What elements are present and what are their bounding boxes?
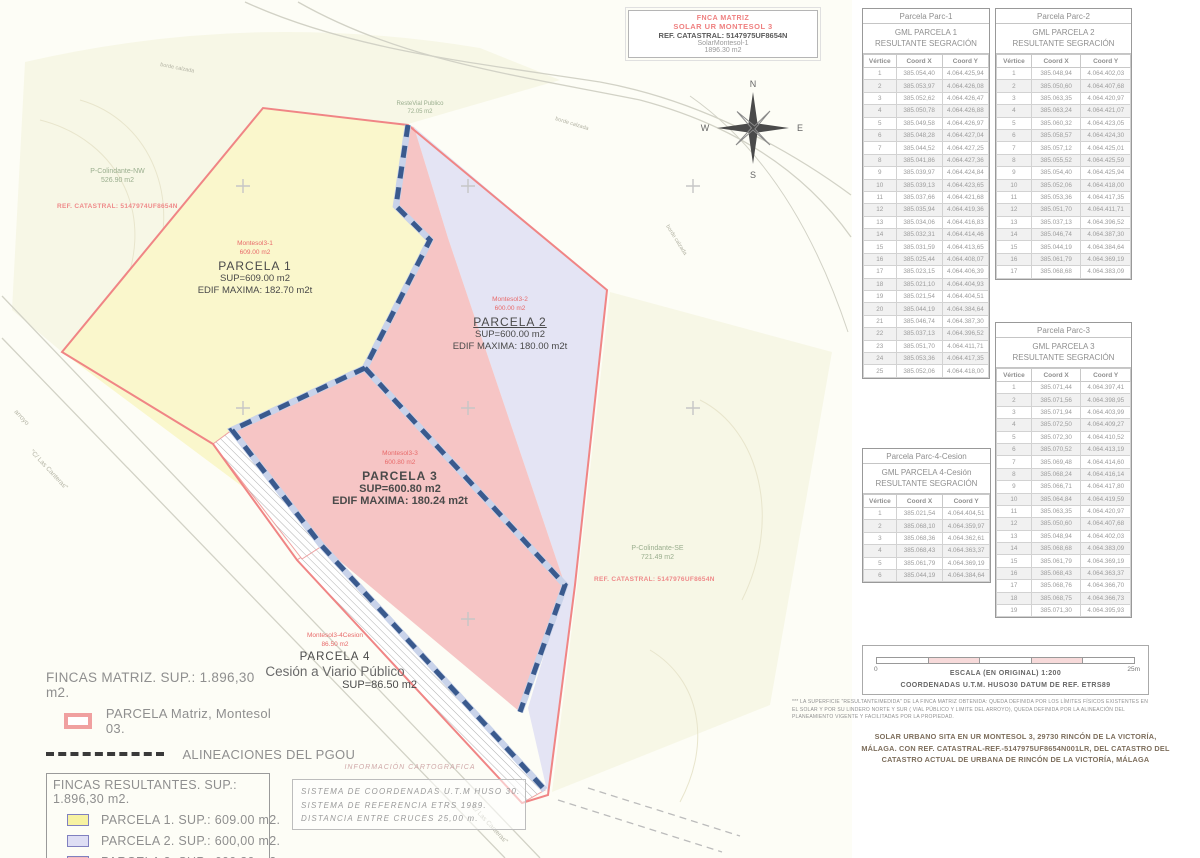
coord-cell: 385.048,28 xyxy=(896,129,942,141)
table-row: 3385.071,944.064.403,99 xyxy=(997,406,1131,418)
title-finca-matriz: FNCA MATRIZ xyxy=(631,15,815,22)
table-row: 14385.068,684.064.383,09 xyxy=(997,543,1131,555)
table-row: 4385.068,434.064.363,37 xyxy=(864,545,990,557)
coord-cell: 4.064.419,59 xyxy=(1081,493,1131,505)
table-row: 3385.052,624.064.426,47 xyxy=(864,92,989,104)
parcela-2-tag-area: 600.00 m2 xyxy=(420,305,600,314)
coord-cell: 1 xyxy=(997,68,1032,80)
coord-cell: 385.054,40 xyxy=(896,68,942,80)
coord-cell: 4.064.366,73 xyxy=(1081,592,1131,604)
coord-cell: 9 xyxy=(997,167,1032,179)
coord-cell: 2 xyxy=(864,520,897,532)
coord-cell: 385.031,59 xyxy=(896,241,942,253)
reste-vial-label: ResteVial Publico 72.05 m2 xyxy=(365,100,475,116)
coord-cell: 385.069,48 xyxy=(1031,456,1081,468)
legend-item: PARCELA 1. SUP.: 609.00 m2. xyxy=(67,811,263,829)
coord-cell: 385.072,30 xyxy=(1031,431,1081,443)
column-header: Coord X xyxy=(896,55,942,68)
legend-item: PARCELA 2. SUP.: 600,00 m2. xyxy=(67,832,263,850)
coord-cell: 4.064.383,09 xyxy=(1081,266,1131,278)
coord-cell: 1 xyxy=(997,382,1032,394)
coord-cell: 6 xyxy=(997,443,1032,455)
coord-cell: 15 xyxy=(997,241,1032,253)
coord-cell: 6 xyxy=(864,129,897,141)
coord-cell: 4.064.402,03 xyxy=(1081,68,1131,80)
coord-cell: 18 xyxy=(997,592,1032,604)
coord-cell: 13 xyxy=(864,216,897,228)
coord-cell: 385.051,70 xyxy=(1031,204,1081,216)
coord-cell: 4.064.398,95 xyxy=(1081,394,1131,406)
coord-cell: 4.064.426,47 xyxy=(942,92,988,104)
coord-cell: 4.064.404,51 xyxy=(942,291,988,303)
coord-cell: 385.037,13 xyxy=(1031,216,1081,228)
coord-cell: 4.064.411,71 xyxy=(1081,204,1131,216)
table-row: 4385.072,504.064.409,27 xyxy=(997,419,1131,431)
compass-n: N xyxy=(750,79,757,89)
coord-cell: 4.064.419,36 xyxy=(942,204,988,216)
table-row: 1385.071,444.064.397,41 xyxy=(997,382,1131,394)
coord-cell: 4.064.410,52 xyxy=(1081,431,1131,443)
table-row: 12385.035,944.064.419,36 xyxy=(864,204,989,216)
cartografia-header: INFORMACIÓN CARTOGRAFICA xyxy=(300,764,520,771)
coord-cell: 385.048,94 xyxy=(1031,68,1081,80)
table-row: 10385.052,064.064.418,00 xyxy=(997,179,1131,191)
coord-cell: 4.064.387,30 xyxy=(1081,229,1131,241)
parcela-3-edif: EDIF MAXIMA: 180.24 m2t xyxy=(305,495,495,507)
coord-cell: 4.064.384,64 xyxy=(1081,241,1131,253)
table-row: 1385.021,544.064.404,51 xyxy=(864,508,990,520)
parcela-3-title: PARCELA 3 xyxy=(305,469,495,483)
coord-cell: 385.021,10 xyxy=(896,278,942,290)
coord-cell: 4 xyxy=(864,105,897,117)
coord-cell: 22 xyxy=(864,328,897,340)
coord-cell: 7 xyxy=(864,142,897,154)
coord-cell: 9 xyxy=(997,481,1032,493)
coord-cell: 385.044,19 xyxy=(896,569,943,581)
parcela-2-edif: EDIF MAXIMA: 180.00 m2t xyxy=(420,341,600,353)
legend-item-label: PARCELA 2. SUP.: 600,00 m2. xyxy=(101,834,280,848)
parcela-2-label: Montesol3-2 600.00 m2 PARCELA 2 SUP=600.… xyxy=(420,296,600,353)
parcela-1-tag: Montesol3-1 xyxy=(165,240,345,249)
coord-cell: 9 xyxy=(864,167,897,179)
parcela-4-tag: Montesol3-4Cesion xyxy=(235,632,435,641)
legend-item: PARCELA 3. SUP.: 600,80 m2. xyxy=(67,853,263,858)
table-row: 6385.048,284.064.427,04 xyxy=(864,129,989,141)
table-subtitle: GML PARCELA 2RESULTANTE SEGRACIÓN xyxy=(996,24,1131,54)
coord-cell: 4.064.414,46 xyxy=(942,229,988,241)
table-row: 19385.021,544.064.404,51 xyxy=(864,291,989,303)
coord-cell: 4.064.369,19 xyxy=(1081,253,1131,265)
legend-parcela-matriz: PARCELA Matriz, Montesol 03. xyxy=(106,706,276,736)
coord-cell: 4.064.407,68 xyxy=(1081,518,1131,530)
column-header: Vértice xyxy=(864,495,897,508)
colindante-se-name: P-Colindante-SE xyxy=(580,544,735,553)
coord-grid: VérticeCoord XCoord Y1385.054,404.064.42… xyxy=(863,54,989,378)
coord-cell: 385.053,36 xyxy=(896,352,942,364)
coord-cell: 4.064.413,65 xyxy=(942,241,988,253)
table-row: 18385.068,754.064.366,73 xyxy=(997,592,1131,604)
coord-cell: 385.071,94 xyxy=(1031,406,1081,418)
coord-cell: 18 xyxy=(864,278,897,290)
coord-cell: 385.055,52 xyxy=(1031,154,1081,166)
coord-cell: 4.064.363,37 xyxy=(1081,567,1131,579)
coord-cell: 4.064.417,80 xyxy=(1081,481,1131,493)
coord-cell: 4.064.425,94 xyxy=(1081,167,1131,179)
coord-cell: 10 xyxy=(997,493,1032,505)
legend-swatch xyxy=(67,814,89,826)
coord-cell: 13 xyxy=(997,216,1032,228)
colindante-se-area-label: 721.49 m2 xyxy=(580,553,735,562)
coord-cell: 4.064.425,59 xyxy=(1081,154,1131,166)
column-header: Vértice xyxy=(997,55,1032,68)
coord-cell: 385.068,43 xyxy=(896,545,943,557)
table-row: 10385.064,844.064.419,59 xyxy=(997,493,1131,505)
table-row: 5385.060,324.064.423,05 xyxy=(997,117,1131,129)
coord-cell: 4.064.359,97 xyxy=(943,520,990,532)
table-row: 3385.063,354.064.420,97 xyxy=(997,92,1131,104)
coord-cell: 4.064.423,65 xyxy=(942,179,988,191)
parcela-1-tag-area: 609.00 m2 xyxy=(165,249,345,258)
table-row: 12385.050,604.064.407,68 xyxy=(997,518,1131,530)
table-row: 3385.068,364.064.362,61 xyxy=(864,532,990,544)
table-row: 21385.046,744.064.387,30 xyxy=(864,315,989,327)
coord-cell: 4.064.416,14 xyxy=(1081,468,1131,480)
coord-cell: 15 xyxy=(997,555,1032,567)
parcela-3-tag-area: 600.80 m2 xyxy=(305,459,495,468)
column-header: Coord X xyxy=(1031,369,1081,382)
title-block: FNCA MATRIZ SOLAR UR MONTESOL 3 REF. CAT… xyxy=(628,10,818,58)
coord-cell: 12 xyxy=(864,204,897,216)
reste-vial-area: 72.05 m2 xyxy=(365,108,475,116)
address-line-2: MÁLAGA. CON REF. CATASTRAL-REF.-5147975U… xyxy=(858,743,1173,755)
coord-cell: 385.068,68 xyxy=(1031,543,1081,555)
coord-cell: 8 xyxy=(997,154,1032,166)
coord-cell: 4.064.402,03 xyxy=(1081,530,1131,542)
table-row: 8385.041,864.064.427,36 xyxy=(864,154,989,166)
coord-cell: 14 xyxy=(997,543,1032,555)
coord-cell: 385.052,62 xyxy=(896,92,942,104)
coord-cell: 385.021,54 xyxy=(896,291,942,303)
coord-cell: 4.064.369,19 xyxy=(943,557,990,569)
coord-grid: VérticeCoord XCoord Y1385.071,444.064.39… xyxy=(996,368,1131,617)
legend-alineaciones: ALINEACIONES DEL PGOU xyxy=(182,747,355,762)
table-row: 7385.069,484.064.414,60 xyxy=(997,456,1131,468)
coord-cell: 16 xyxy=(997,253,1032,265)
compass-e: E xyxy=(797,123,803,133)
coord-cell: 4.064.366,70 xyxy=(1081,580,1131,592)
table-row: 15385.061,794.064.369,19 xyxy=(997,555,1131,567)
coord-cell: 385.066,71 xyxy=(1031,481,1081,493)
coord-cell: 20 xyxy=(864,303,897,315)
table-row: 17385.068,764.064.366,70 xyxy=(997,580,1131,592)
table-row: 4385.063,244.064.421,07 xyxy=(997,105,1131,117)
column-header: Coord Y xyxy=(1081,369,1131,382)
table-row: 20385.044,194.064.384,64 xyxy=(864,303,989,315)
coord-cell: 4.064.406,39 xyxy=(942,266,988,278)
coord-cell: 385.052,06 xyxy=(1031,179,1081,191)
colindante-nw-name: P-Colindante-NW xyxy=(40,167,195,176)
colindante-se-label: P-Colindante-SE 721.49 m2 xyxy=(580,544,735,562)
colindante-nw-area-label: 526.90 m2 xyxy=(40,176,195,185)
coord-cell: 4.064.414,60 xyxy=(1081,456,1131,468)
table-row: 17385.068,684.064.383,09 xyxy=(997,266,1131,278)
coord-cell: 8 xyxy=(864,154,897,166)
table-title: Parcela Parc-4-Cesion xyxy=(863,449,990,464)
coord-cell: 385.049,58 xyxy=(896,117,942,129)
coord-cell: 385.061,79 xyxy=(1031,253,1081,265)
coord-cell: 21 xyxy=(864,315,897,327)
coord-cell: 4.064.420,97 xyxy=(1081,92,1131,104)
coord-cell: 385.068,24 xyxy=(1031,468,1081,480)
coord-cell: 1 xyxy=(864,508,897,520)
coord-cell: 385.060,32 xyxy=(1031,117,1081,129)
table-row: 13385.034,064.064.416,83 xyxy=(864,216,989,228)
coord-cell: 4.064.420,97 xyxy=(1081,505,1131,517)
coord-cell: 4.064.425,94 xyxy=(942,68,988,80)
table-row: 9385.054,404.064.425,94 xyxy=(997,167,1131,179)
footnote-line-2: EL SOLAR Y POR SU LINDERO NORTE Y SUR ( … xyxy=(792,707,1167,715)
coord-cell: 2 xyxy=(864,80,897,92)
coord-cell: 4.064.413,19 xyxy=(1081,443,1131,455)
coord-cell: 25 xyxy=(864,365,897,377)
coord-cell: 4.064.363,37 xyxy=(943,545,990,557)
table-row: 9385.066,714.064.417,80 xyxy=(997,481,1131,493)
coord-cell: 385.063,24 xyxy=(1031,105,1081,117)
coord-cell: 4.064.426,08 xyxy=(942,80,988,92)
table-row: 2385.071,564.064.398,95 xyxy=(997,394,1131,406)
coord-cell: 11 xyxy=(997,191,1032,203)
coord-cell: 385.057,12 xyxy=(1031,142,1081,154)
table-subtitle: GML PARCELA 3RESULTANTE SEGRACIÓN xyxy=(996,338,1131,368)
table-row: 19385.071,304.064.395,93 xyxy=(997,605,1131,617)
table-row: 16385.061,794.064.369,19 xyxy=(997,253,1131,265)
coord-cell: 4.064.424,84 xyxy=(942,167,988,179)
parcela-2-sup: SUP=600.00 m2 xyxy=(420,329,600,341)
compass-s: S xyxy=(750,170,756,180)
table-row: 11385.053,364.064.417,35 xyxy=(997,191,1131,203)
coord-cell: 24 xyxy=(864,352,897,364)
footnote-line-3: PLANEAMIENTO VIGENTE Y FACILITADAS POR L… xyxy=(792,714,1167,722)
title-area: 1896.30 m2 xyxy=(631,47,815,54)
column-header: Coord Y xyxy=(942,55,988,68)
coord-cell: 385.037,13 xyxy=(896,328,942,340)
matriz-swatch xyxy=(64,713,92,729)
coord-cell: 385.063,35 xyxy=(1031,92,1081,104)
coord-cell: 4.064.369,19 xyxy=(1081,555,1131,567)
coord-cell: 14 xyxy=(997,229,1032,241)
coord-cell: 4.064.362,61 xyxy=(943,532,990,544)
coord-cell: 4.064.417,35 xyxy=(942,352,988,364)
colindante-nw-label: P-Colindante-NW 526.90 m2 xyxy=(40,167,195,185)
coord-cell: 385.068,43 xyxy=(1031,567,1081,579)
column-header: Vértice xyxy=(864,55,897,68)
cadastral-plan-page: { "title_block": { "line1": "FNCA MATRIZ… xyxy=(0,0,1200,858)
coord-cell: 4.064.427,36 xyxy=(942,154,988,166)
coord-cell: 7 xyxy=(997,142,1032,154)
coord-cell: 4.064.426,97 xyxy=(942,117,988,129)
coord-cell: 4.064.395,93 xyxy=(1081,605,1131,617)
table-title: Parcela Parc-1 xyxy=(863,9,989,24)
coord-cell: 385.041,86 xyxy=(896,154,942,166)
coord-cell: 4.064.427,25 xyxy=(942,142,988,154)
coord-cell: 4.064.417,35 xyxy=(1081,191,1131,203)
coord-cell: 4.064.421,68 xyxy=(942,191,988,203)
cartografia-box: SISTEMA DE COORDENADAS U.T.M HUSO 30. SI… xyxy=(292,779,526,830)
coord-grid: VérticeCoord XCoord Y1385.021,544.064.40… xyxy=(863,494,990,582)
coord-cell: 4.064.407,68 xyxy=(1081,80,1131,92)
coord-cell: 385.021,54 xyxy=(896,508,943,520)
column-header: Vértice xyxy=(997,369,1032,382)
coord-cell: 4.064.397,41 xyxy=(1081,382,1131,394)
coord-cell: 385.023,15 xyxy=(896,266,942,278)
table-row: 11385.063,354.064.420,97 xyxy=(997,505,1131,517)
coord-cell: 6 xyxy=(997,129,1032,141)
coord-cell: 4.064.387,30 xyxy=(942,315,988,327)
coord-cell: 385.068,75 xyxy=(1031,592,1081,604)
coord-cell: 5 xyxy=(997,431,1032,443)
table-row: 2385.053,974.064.426,08 xyxy=(864,80,989,92)
table-row: 4385.050,784.064.426,88 xyxy=(864,105,989,117)
table-row: 5385.072,304.064.410,52 xyxy=(997,431,1131,443)
table-row: 2385.050,604.064.407,68 xyxy=(997,80,1131,92)
table-row: 18385.021,104.064.404,93 xyxy=(864,278,989,290)
coord-cell: 385.071,44 xyxy=(1031,382,1081,394)
title-solar: SOLAR UR MONTESOL 3 xyxy=(631,22,815,31)
address-block: SOLAR URBANO SITA EN UR MONTESOL 3, 2973… xyxy=(858,731,1173,766)
coord-cell: 2 xyxy=(997,80,1032,92)
coord-cell: 14 xyxy=(864,229,897,241)
title-ref-catastral: REF. CATASTRAL: 5147975UF8654N xyxy=(631,31,815,40)
coord-cell: 4 xyxy=(997,105,1032,117)
coord-cell: 3 xyxy=(864,92,897,104)
carto-line-2: SISTEMA DE REFERENCIA ETRS 1989. xyxy=(301,799,517,813)
parcela-4-title: PARCELA 4 xyxy=(235,651,435,663)
table-subtitle: GML PARCELA 4-CesiónRESULTANTE SEGRACIÓN xyxy=(863,464,990,494)
coord-cell: 17 xyxy=(864,266,897,278)
table-title: Parcela Parc-3 xyxy=(996,323,1131,338)
coord-cell: 4.064.426,88 xyxy=(942,105,988,117)
coord-cell: 4.064.424,30 xyxy=(1081,129,1131,141)
coord-cell: 385.050,60 xyxy=(1031,518,1081,530)
coord-cell: 4.064.396,52 xyxy=(942,328,988,340)
coord-cell: 385.053,97 xyxy=(896,80,942,92)
coord-cell: 385.046,74 xyxy=(896,315,942,327)
coord-table-parc-2: Parcela Parc-2 GML PARCELA 2RESULTANTE S… xyxy=(995,8,1132,280)
address-line-1: SOLAR URBANO SITA EN UR MONTESOL 3, 2973… xyxy=(858,731,1173,743)
coord-cell: 4 xyxy=(997,419,1032,431)
footnote: *** LA SUPERFICIE "RESULTANTE/MEDIDA" DE… xyxy=(792,699,1167,722)
coord-cell: 385.052,06 xyxy=(896,365,942,377)
coord-cell: 4.064.418,00 xyxy=(942,365,988,377)
table-row: 8385.068,244.064.416,14 xyxy=(997,468,1131,480)
table-row: 11385.037,664.064.421,68 xyxy=(864,191,989,203)
coord-table-parc-3: Parcela Parc-3 GML PARCELA 3RESULTANTE S… xyxy=(995,322,1132,618)
coord-cell: 4.064.409,27 xyxy=(1081,419,1131,431)
coord-cell: 385.058,57 xyxy=(1031,129,1081,141)
table-row: 13385.048,944.064.402,03 xyxy=(997,530,1131,542)
column-header: Coord X xyxy=(1031,55,1081,68)
table-row: 12385.051,704.064.411,71 xyxy=(997,204,1131,216)
coord-cell: 4.064.421,07 xyxy=(1081,105,1131,117)
column-header: Coord Y xyxy=(1081,55,1131,68)
coord-cell: 385.068,36 xyxy=(896,532,943,544)
coord-table-parc-4: Parcela Parc-4-Cesion GML PARCELA 4-Cesi… xyxy=(862,448,991,583)
coord-cell: 4.064.427,04 xyxy=(942,129,988,141)
coord-cell: 385.063,35 xyxy=(1031,505,1081,517)
coord-cell: 385.032,31 xyxy=(896,229,942,241)
legend-fincas-matriz: FINCAS MATRIZ. SUP.: 1.896,30 m2. xyxy=(46,670,276,700)
coord-cell: 385.044,52 xyxy=(896,142,942,154)
coord-cell: 13 xyxy=(997,530,1032,542)
table-row: 5385.049,584.064.426,97 xyxy=(864,117,989,129)
coord-cell: 385.071,30 xyxy=(1031,605,1081,617)
table-row: 2385.068,104.064.359,97 xyxy=(864,520,990,532)
table-title: Parcela Parc-2 xyxy=(996,9,1131,24)
coord-cell: 385.048,94 xyxy=(1031,530,1081,542)
table-row: 7385.057,124.064.425,01 xyxy=(997,142,1131,154)
coord-cell: 385.072,50 xyxy=(1031,419,1081,431)
coord-cell: 385.046,74 xyxy=(1031,229,1081,241)
table-row: 13385.037,134.064.396,52 xyxy=(997,216,1131,228)
coord-cell: 12 xyxy=(997,204,1032,216)
coord-cell: 385.034,06 xyxy=(896,216,942,228)
alignment-dash-sample xyxy=(46,752,164,756)
coord-cell: 4.064.416,83 xyxy=(942,216,988,228)
parcela-2-tag: Montesol3-2 xyxy=(420,296,600,305)
coord-cell: 2 xyxy=(997,394,1032,406)
coord-cell: 16 xyxy=(864,253,897,265)
coord-cell: 19 xyxy=(864,291,897,303)
coord-cell: 7 xyxy=(997,456,1032,468)
table-row: 17385.023,154.064.406,39 xyxy=(864,266,989,278)
coord-cell: 385.035,94 xyxy=(896,204,942,216)
scale-bar-box: 0 25m ESCALA (EN ORIGINAL) 1:200 COORDEN… xyxy=(862,645,1149,695)
table-row: 7385.044,524.064.427,25 xyxy=(864,142,989,154)
coord-cell: 4.064.383,09 xyxy=(1081,543,1131,555)
column-header: Coord X xyxy=(896,495,943,508)
coord-cell: 385.068,76 xyxy=(1031,580,1081,592)
compass-w: W xyxy=(701,123,710,133)
coord-cell: 385.037,66 xyxy=(896,191,942,203)
table-row: 22385.037,134.064.396,52 xyxy=(864,328,989,340)
coord-cell: 385.068,68 xyxy=(1031,266,1081,278)
coord-cell: 385.068,10 xyxy=(896,520,943,532)
table-row: 1385.048,944.064.402,03 xyxy=(997,68,1131,80)
table-row: 10385.039,134.064.423,65 xyxy=(864,179,989,191)
coord-cell: 12 xyxy=(997,518,1032,530)
coord-cell: 385.061,79 xyxy=(1031,555,1081,567)
coord-cell: 385.039,97 xyxy=(896,167,942,179)
coord-cell: 10 xyxy=(997,179,1032,191)
coord-cell: 4.064.404,93 xyxy=(942,278,988,290)
title-solar-montesol: SolarMontesol-1 xyxy=(631,40,815,47)
parcela-1-edif: EDIF MAXIMA: 182.70 m2t xyxy=(165,285,345,297)
scale-text-2: COORDENADAS U.T.M. HUSO30 DATUM DE REF. … xyxy=(863,682,1148,689)
coord-cell: 385.050,60 xyxy=(1031,80,1081,92)
coord-cell: 19 xyxy=(997,605,1032,617)
legend-item-label: PARCELA 1. SUP.: 609.00 m2. xyxy=(101,813,280,827)
coord-cell: 10 xyxy=(864,179,897,191)
coord-table-parc-1: Parcela Parc-1 GML PARCELA 1RESULTANTE S… xyxy=(862,8,990,379)
coord-cell: 11 xyxy=(997,505,1032,517)
scale-ruler xyxy=(876,657,1135,664)
coord-cell: 4.064.403,99 xyxy=(1081,406,1131,418)
parcela-3-tag: Montesol3-3 xyxy=(305,450,495,459)
parcela-2-title: PARCELA 2 xyxy=(420,315,600,329)
legend-swatch xyxy=(67,835,89,847)
coord-cell: 385.025,44 xyxy=(896,253,942,265)
fincas-resultantes-box: FINCAS RESULTANTES. SUP.: 1.896,30 m2. P… xyxy=(46,773,270,858)
